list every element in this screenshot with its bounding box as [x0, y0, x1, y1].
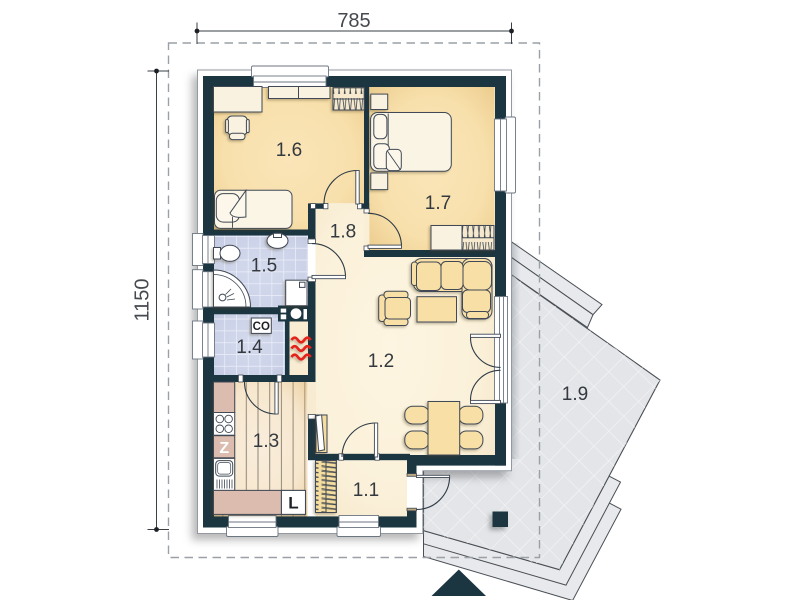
svg-text:1.2: 1.2 — [368, 351, 394, 372]
svg-text:CO: CO — [253, 321, 270, 333]
svg-text:1.8: 1.8 — [330, 222, 356, 243]
svg-text:785: 785 — [337, 10, 370, 32]
svg-text:1.6: 1.6 — [276, 140, 302, 161]
svg-text:1.9: 1.9 — [562, 384, 588, 405]
svg-text:1.1: 1.1 — [353, 480, 379, 501]
svg-text:1.5: 1.5 — [251, 256, 277, 277]
svg-text:1.4: 1.4 — [236, 337, 263, 358]
svg-text:Z: Z — [219, 440, 229, 457]
svg-text:1.3: 1.3 — [253, 431, 279, 452]
svg-text:1.7: 1.7 — [425, 193, 451, 214]
svg-text:L: L — [288, 494, 298, 513]
svg-text:1150: 1150 — [132, 278, 154, 321]
